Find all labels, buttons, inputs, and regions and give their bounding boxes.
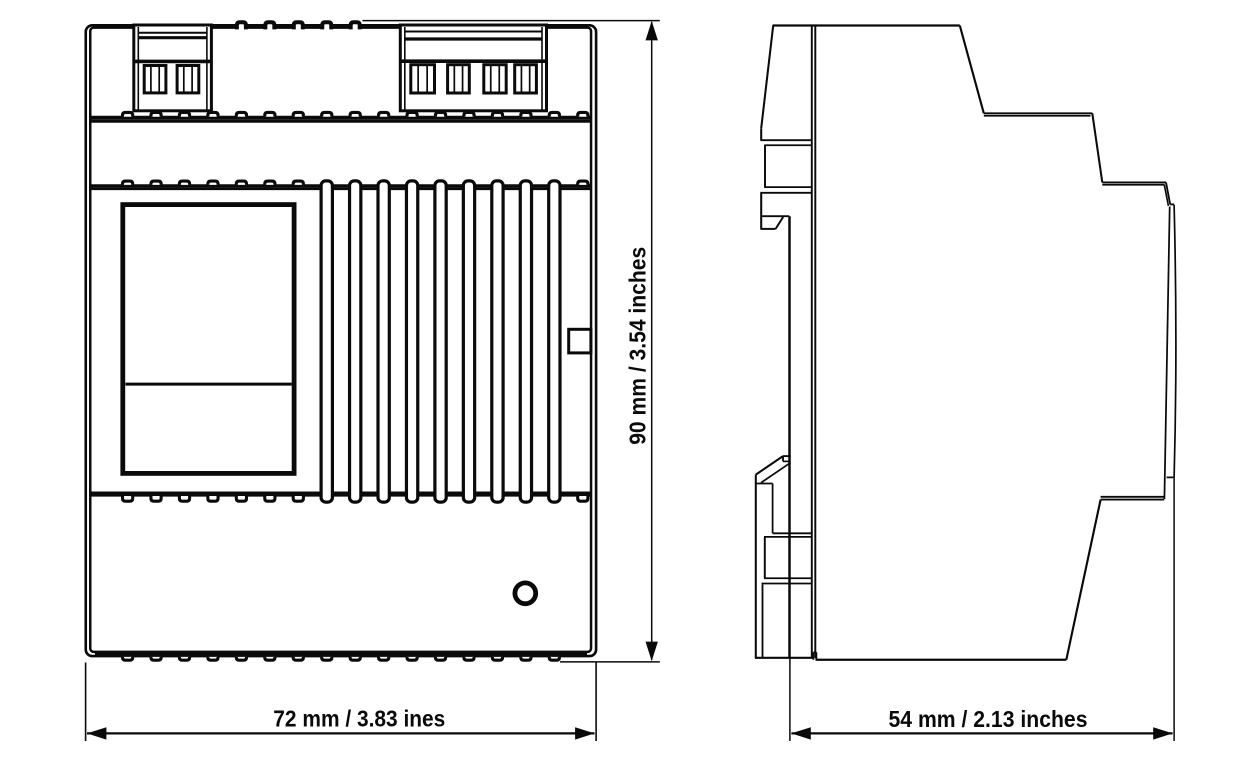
svg-text:72 mm / 3.83 ines: 72 mm / 3.83 ines <box>273 706 445 732</box>
svg-text:54 mm / 2.13 inches: 54 mm / 2.13 inches <box>889 706 1088 732</box>
svg-text:90 mm / 3.54 inches: 90 mm / 3.54 inches <box>625 247 651 445</box>
